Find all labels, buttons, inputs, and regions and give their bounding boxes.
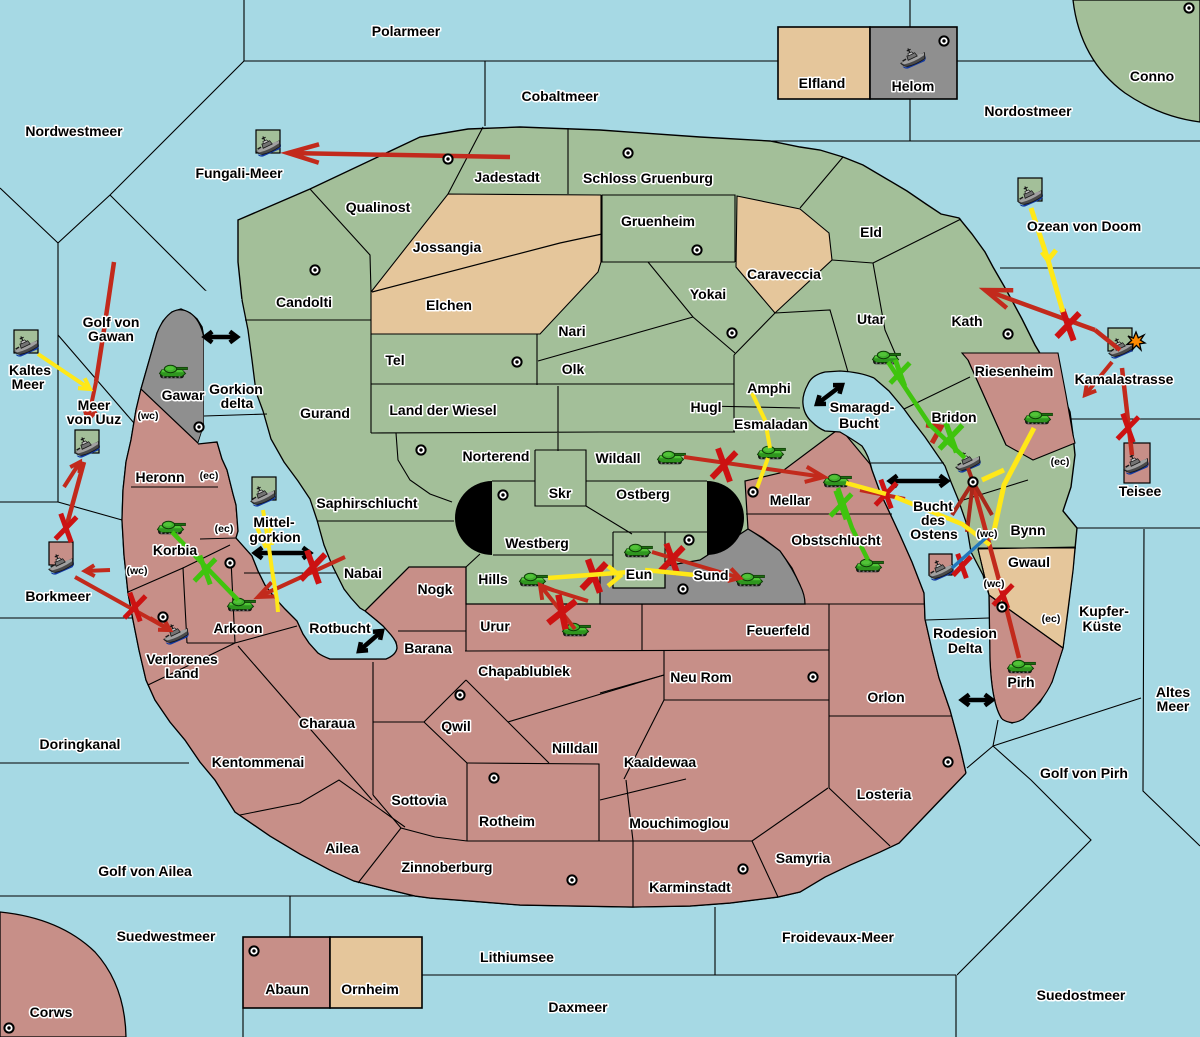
svg-text:Qwil: Qwil — [441, 718, 471, 734]
svg-text:Fungali-Meer: Fungali-Meer — [195, 165, 283, 181]
svg-text:Jadestadt: Jadestadt — [474, 169, 540, 185]
svg-text:Kentommenai: Kentommenai — [212, 754, 305, 770]
svg-text:Nogk: Nogk — [418, 581, 453, 597]
svg-text:(wc): (wc) — [138, 410, 159, 422]
svg-text:Meer: Meer — [12, 376, 45, 392]
svg-text:Nari: Nari — [558, 323, 585, 339]
svg-text:Kupfer-: Kupfer- — [1079, 603, 1129, 619]
svg-text:Orlon: Orlon — [867, 689, 904, 705]
svg-text:Mittel-: Mittel- — [253, 514, 295, 530]
svg-text:Amphi: Amphi — [747, 380, 791, 396]
svg-text:Jossangia: Jossangia — [413, 239, 482, 255]
svg-text:Utar: Utar — [857, 311, 886, 327]
svg-text:Borkmeer: Borkmeer — [25, 588, 91, 604]
svg-text:Cobaltmeer: Cobaltmeer — [521, 88, 599, 104]
svg-text:(ec): (ec) — [1042, 613, 1061, 625]
svg-text:Gawan: Gawan — [88, 328, 134, 344]
svg-text:Pirh: Pirh — [1007, 674, 1034, 690]
svg-text:Caraveccia: Caraveccia — [747, 266, 821, 282]
svg-text:Corws: Corws — [30, 1004, 73, 1020]
svg-text:Hills: Hills — [478, 571, 508, 587]
svg-text:Land: Land — [165, 665, 198, 681]
svg-text:Land der Wiesel: Land der Wiesel — [389, 402, 496, 418]
svg-text:Suedostmeer: Suedostmeer — [1037, 987, 1126, 1003]
svg-text:Gurand: Gurand — [300, 405, 350, 421]
svg-text:Golf von Ailea: Golf von Ailea — [98, 863, 192, 879]
svg-text:Mellar: Mellar — [770, 492, 811, 508]
svg-text:(ec): (ec) — [215, 523, 234, 535]
svg-text:Kath: Kath — [951, 313, 982, 329]
svg-text:Suedwestmeer: Suedwestmeer — [117, 928, 216, 944]
svg-text:Urur: Urur — [480, 618, 510, 634]
svg-text:Delta: Delta — [948, 640, 982, 656]
svg-text:(ec): (ec) — [200, 470, 219, 482]
svg-text:Schloss Gruenburg: Schloss Gruenburg — [583, 170, 713, 186]
svg-text:Samyria: Samyria — [776, 850, 831, 866]
svg-text:Riesenheim: Riesenheim — [975, 363, 1054, 379]
svg-text:Nabai: Nabai — [344, 565, 382, 581]
svg-text:Ornheim: Ornheim — [341, 981, 399, 997]
svg-text:Korbia: Korbia — [153, 542, 198, 558]
svg-text:Ostberg: Ostberg — [616, 486, 670, 502]
svg-text:Ozean von Doom: Ozean von Doom — [1027, 218, 1141, 234]
svg-text:Westberg: Westberg — [505, 535, 569, 551]
svg-text:(wc): (wc) — [977, 528, 998, 540]
svg-text:Heronn: Heronn — [136, 469, 185, 485]
svg-text:(wc): (wc) — [984, 578, 1005, 590]
svg-text:Yokai: Yokai — [690, 286, 726, 302]
svg-text:Hugl: Hugl — [690, 399, 721, 415]
svg-text:Helom: Helom — [892, 78, 935, 94]
svg-text:Elchen: Elchen — [426, 297, 472, 313]
svg-text:Nordostmeer: Nordostmeer — [984, 103, 1072, 119]
svg-text:Teisee: Teisee — [1119, 483, 1162, 499]
svg-text:Esmaladan: Esmaladan — [734, 416, 808, 432]
svg-text:Charaua: Charaua — [299, 715, 355, 731]
svg-text:Wildall: Wildall — [596, 450, 641, 466]
svg-text:Feuerfeld: Feuerfeld — [746, 622, 809, 638]
svg-text:Kaaldewaa: Kaaldewaa — [624, 754, 697, 770]
svg-text:Obstschlucht: Obstschlucht — [791, 532, 881, 548]
svg-text:Doringkanal: Doringkanal — [40, 736, 121, 752]
svg-text:Bynn: Bynn — [1011, 522, 1046, 538]
svg-text:Chapablublek: Chapablublek — [478, 663, 570, 679]
svg-text:von Uuz: von Uuz — [67, 411, 121, 427]
svg-text:Neu Rom: Neu Rom — [670, 669, 731, 685]
svg-text:(ec): (ec) — [1051, 456, 1070, 468]
svg-text:Norterend: Norterend — [463, 448, 530, 464]
svg-text:Elfland: Elfland — [799, 75, 846, 91]
svg-text:Sund: Sund — [694, 567, 729, 583]
svg-text:Sottovia: Sottovia — [391, 792, 446, 808]
svg-text:Ostens: Ostens — [910, 526, 958, 542]
svg-text:Tel: Tel — [385, 352, 404, 368]
svg-text:gorkion: gorkion — [249, 529, 300, 545]
svg-text:Saphirschlucht: Saphirschlucht — [316, 495, 417, 511]
svg-text:Meer: Meer — [1157, 698, 1190, 714]
svg-text:Karminstadt: Karminstadt — [649, 879, 731, 895]
svg-text:(wc): (wc) — [127, 565, 148, 577]
svg-text:Olk: Olk — [562, 361, 585, 377]
svg-text:Golf von Pirh: Golf von Pirh — [1040, 765, 1128, 781]
svg-text:Nilldall: Nilldall — [552, 740, 598, 756]
svg-text:Lithiumsee: Lithiumsee — [480, 949, 554, 965]
svg-text:Küste: Küste — [1083, 618, 1122, 634]
svg-text:Kamalastrasse: Kamalastrasse — [1075, 371, 1174, 387]
svg-text:Eun: Eun — [626, 566, 652, 582]
svg-text:Conno: Conno — [1130, 68, 1174, 84]
svg-text:Mouchimoglou: Mouchimoglou — [629, 815, 729, 831]
svg-text:Losteria: Losteria — [857, 786, 912, 802]
svg-text:Gawar: Gawar — [162, 387, 205, 403]
svg-text:Froidevaux-Meer: Froidevaux-Meer — [782, 929, 895, 945]
svg-text:Ailea: Ailea — [325, 840, 359, 856]
svg-text:Qualinost: Qualinost — [346, 199, 411, 215]
svg-text:delta: delta — [221, 395, 254, 411]
svg-text:Nordwestmeer: Nordwestmeer — [25, 123, 123, 139]
svg-text:Rodesion: Rodesion — [933, 625, 997, 641]
svg-text:Rotheim: Rotheim — [479, 813, 535, 829]
svg-text:Candolti: Candolti — [276, 294, 332, 310]
svg-text:Polarmeer: Polarmeer — [372, 23, 441, 39]
svg-text:Bridon: Bridon — [931, 409, 976, 425]
svg-text:Barana: Barana — [404, 640, 452, 656]
svg-text:Abaun: Abaun — [265, 981, 309, 997]
svg-text:Gwaul: Gwaul — [1008, 554, 1050, 570]
svg-text:Bucht: Bucht — [839, 415, 879, 431]
svg-text:Gruenheim: Gruenheim — [621, 213, 695, 229]
svg-text:Daxmeer: Daxmeer — [548, 999, 608, 1015]
svg-text:Zinnoberburg: Zinnoberburg — [402, 859, 493, 875]
svg-text:Rotbucht: Rotbucht — [309, 620, 371, 636]
svg-text:Skr: Skr — [549, 485, 572, 501]
svg-text:Smaragd-: Smaragd- — [830, 399, 895, 415]
svg-text:Arkoon: Arkoon — [214, 620, 263, 636]
svg-text:Eld: Eld — [860, 224, 882, 240]
